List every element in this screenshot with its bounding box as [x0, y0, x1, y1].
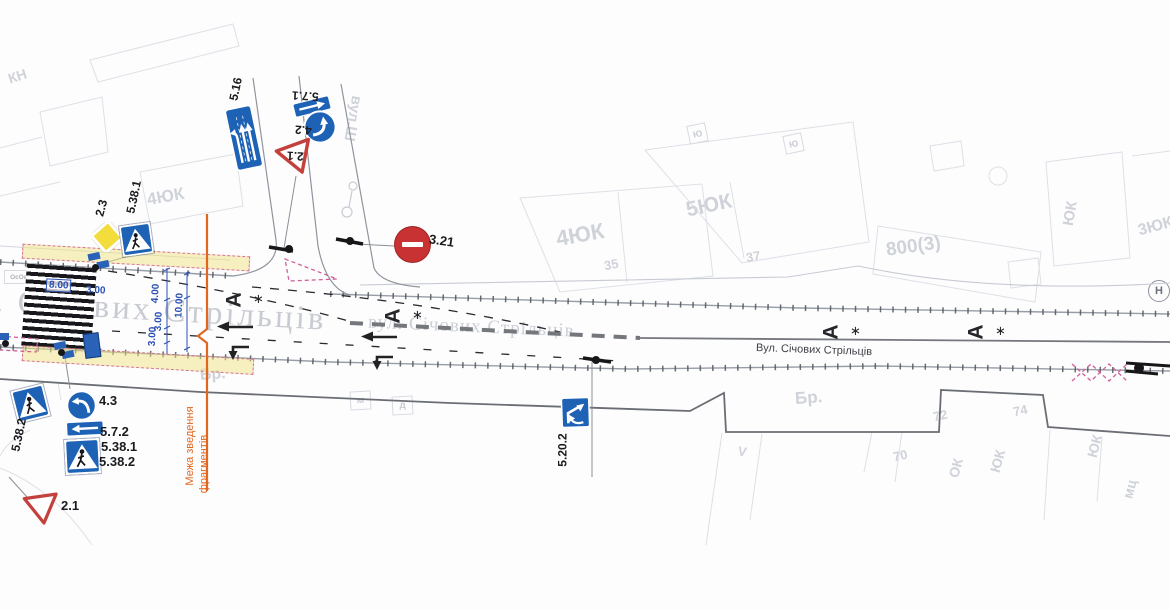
bus-lane-letter: А: [382, 308, 406, 323]
bus-lane-star: ∗: [850, 323, 861, 339]
crossing-post-dot: [58, 349, 65, 356]
pedestrian-crossing-sign-5-38-1-left: [119, 222, 154, 257]
bus-lane-letter: А: [820, 324, 844, 339]
magenta-markings: [0, 259, 1127, 381]
bus-lane-letter: А: [965, 324, 989, 339]
sign-label-5-38-1-bottom: 5.38.1: [101, 439, 137, 454]
sign-back-panel: [83, 332, 102, 359]
dimension-10-00: 10.00: [173, 293, 185, 319]
no-entry-sign-3-21: [395, 227, 430, 262]
bus-lane-star: ∗: [995, 323, 1006, 339]
bus-lane-star: ∗: [412, 307, 423, 323]
lane-arrows: [217, 322, 397, 371]
bus-lane-letter: А: [223, 292, 247, 307]
dimension-4-00: 4.00: [150, 283, 162, 303]
dimension-3-00: 3.00: [86, 284, 106, 296]
dimension-3-00-b: 3.00: [147, 326, 159, 346]
sign-label-2-1-top: 2.1: [287, 149, 304, 164]
sign-label-2-1-bottom: 2.1: [61, 498, 79, 513]
traffic-scheme-drawing: вул. Січових Стрільців вул. Січових Стрі…: [0, 0, 1170, 610]
crossing-post-dot: [2, 340, 9, 347]
bus-lane-star: ∗: [253, 291, 264, 307]
turn-left-sign-4-3: [64, 388, 98, 422]
sign-label-4-2: 4.2: [295, 123, 312, 138]
sign-label-5-38-2-bottom: 5.38.2: [99, 454, 135, 469]
sign-label-5-7-1: 5.7.1: [292, 88, 319, 103]
bus-lane-road-sign-5-7-2: [66, 420, 105, 437]
sign-label-5-7-2: 5.7.2: [100, 424, 129, 439]
pedestrian-crossing-sign-5-38-1-bottom: [64, 438, 101, 475]
dimension-8-00: 8.00: [46, 278, 72, 292]
crossing-post-flag: [0, 333, 9, 340]
sign-label-4-3: 4.3: [99, 393, 117, 408]
sign-label-5-20-2: 5.20.2: [556, 433, 570, 466]
no-entry-bar: [402, 242, 423, 248]
crossing-post-dot: [92, 264, 99, 271]
fragment-boundary-label-2: фрагментів: [198, 414, 210, 514]
give-way-sign-2-1-bottom: [20, 489, 64, 528]
end-of-lane-sign-5-20-2: [560, 397, 590, 429]
fragment-boundary-label-1: Межа зведення: [184, 396, 196, 496]
